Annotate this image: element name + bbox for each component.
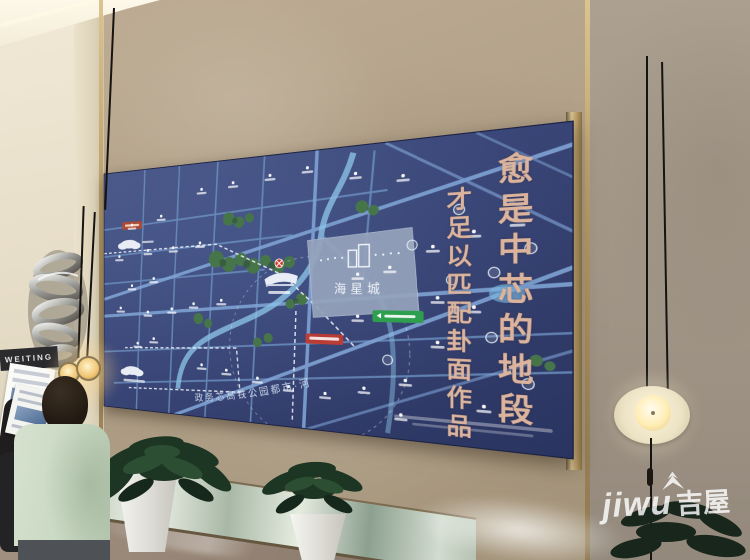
photo-watermark: jiwu 吉屋 xyxy=(601,487,730,521)
calligraphy-right-column: 愈是中芯的地段 xyxy=(486,150,537,435)
calligraphy-left-column: 才足以匹配卦面作品 xyxy=(440,185,476,443)
watermark-latin: jiwu xyxy=(601,490,672,521)
jiwu-logo-icon xyxy=(658,469,689,493)
lobby-photo: 海星城 xyxy=(0,0,750,560)
pendant-lamp-icon xyxy=(76,356,101,381)
potted-plant xyxy=(254,446,374,530)
gold-trim-right xyxy=(585,0,590,560)
pendant-knob xyxy=(647,468,653,486)
map-board: 海星城 xyxy=(104,120,574,459)
map-board-face: 海星城 xyxy=(104,120,574,459)
watermark-cjk: 吉屋 xyxy=(676,490,731,517)
cloud-icon xyxy=(121,365,145,383)
pendant-rod xyxy=(646,56,648,404)
lamp-dot xyxy=(651,411,655,415)
cloud-icon xyxy=(118,239,154,250)
person-pants xyxy=(18,540,110,560)
person-torso xyxy=(14,424,110,546)
project-name: 海星城 xyxy=(334,281,384,297)
